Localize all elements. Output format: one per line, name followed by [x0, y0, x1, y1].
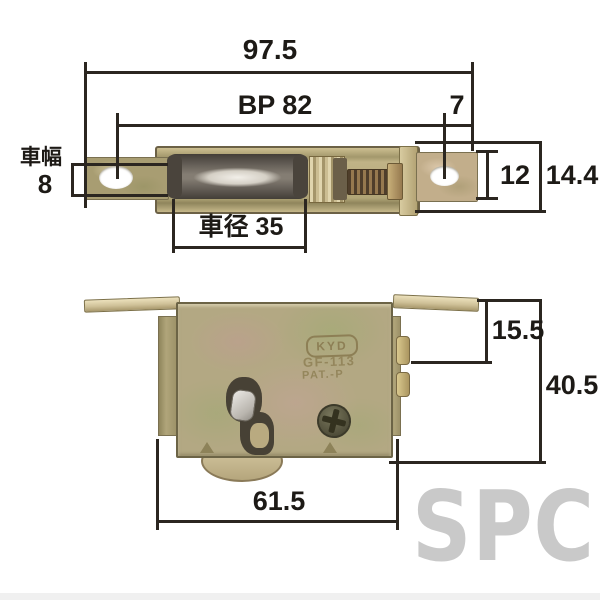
dim-615-line — [157, 520, 399, 523]
dim-shafuku-vert — [71, 163, 74, 197]
dim-615-tick-left — [156, 439, 159, 530]
dim-144-label: 14.4 — [543, 161, 600, 189]
dim-7-tick — [443, 113, 446, 179]
stamp-model-number: GF-113 — [303, 353, 356, 370]
dim-144-line-bottom — [415, 210, 546, 213]
screw-nut — [387, 163, 403, 200]
dim-shakei-line — [172, 246, 307, 249]
dim-bp82-tick-left — [116, 113, 119, 179]
wheel-right-flange — [293, 155, 308, 198]
dim-bp82-line — [117, 124, 473, 127]
adjustment-screw — [347, 169, 390, 195]
dim-12-tick-top — [476, 150, 498, 153]
keyhole-stem-inner — [250, 423, 269, 448]
dim-97-tick-right — [471, 62, 474, 151]
stake-mark-left — [200, 442, 214, 453]
dim-bp82-label: BP 82 — [225, 91, 325, 119]
dim-shafuku-label: 車幅 — [12, 147, 70, 169]
dim-97-label: 97.5 — [225, 35, 315, 64]
product-dimension-diagram: 97.5 BP 82 7 12 14.4 車幅 8 車径 35 KYD GF-1… — [0, 0, 600, 600]
dim-155-tick — [411, 361, 492, 364]
dim-615-tick-right — [396, 439, 399, 530]
dim-97-tick-left — [84, 62, 87, 208]
dim-shafuku-line-bottom — [71, 194, 168, 197]
front-left-flange — [84, 296, 180, 312]
dim-144-vert — [539, 141, 542, 213]
left-side-wing — [158, 316, 178, 436]
dim-shakei-label: 車径 35 — [178, 214, 304, 240]
dim-405-line-bottom — [389, 461, 546, 464]
side-screw-lower — [396, 372, 410, 397]
dim-155-label: 15.5 — [490, 316, 546, 344]
stake-mark-right — [323, 442, 337, 453]
adjuster-bracket — [333, 158, 347, 200]
front-face-plate — [176, 302, 393, 458]
front-right-flange — [393, 294, 480, 312]
dim-144-line-top — [415, 141, 542, 144]
roller-wheel-side — [167, 154, 308, 199]
dim-shakei-tick-right — [304, 199, 307, 253]
image-bottom-edge — [0, 593, 600, 600]
wheel-left-flange — [167, 155, 182, 198]
dim-7-label: 7 — [444, 91, 470, 119]
dim-12-label: 12 — [498, 161, 532, 189]
side-screw-upper — [396, 336, 410, 365]
dim-12-tick-bottom — [476, 197, 498, 200]
dim-155-vert — [485, 299, 488, 364]
dim-405-label: 40.5 — [544, 371, 600, 399]
dim-shafuku-line-top — [71, 163, 168, 166]
spc-watermark: SPC — [412, 489, 595, 565]
dim-shakei-tick-left — [172, 199, 175, 253]
dim-97-line — [85, 71, 473, 74]
stamp-patent-mark: PAT.-P — [302, 368, 345, 381]
dim-615-label: 61.5 — [243, 487, 315, 515]
dim-12-vert — [486, 152, 489, 199]
dim-shafuku-value: 8 — [30, 171, 60, 198]
